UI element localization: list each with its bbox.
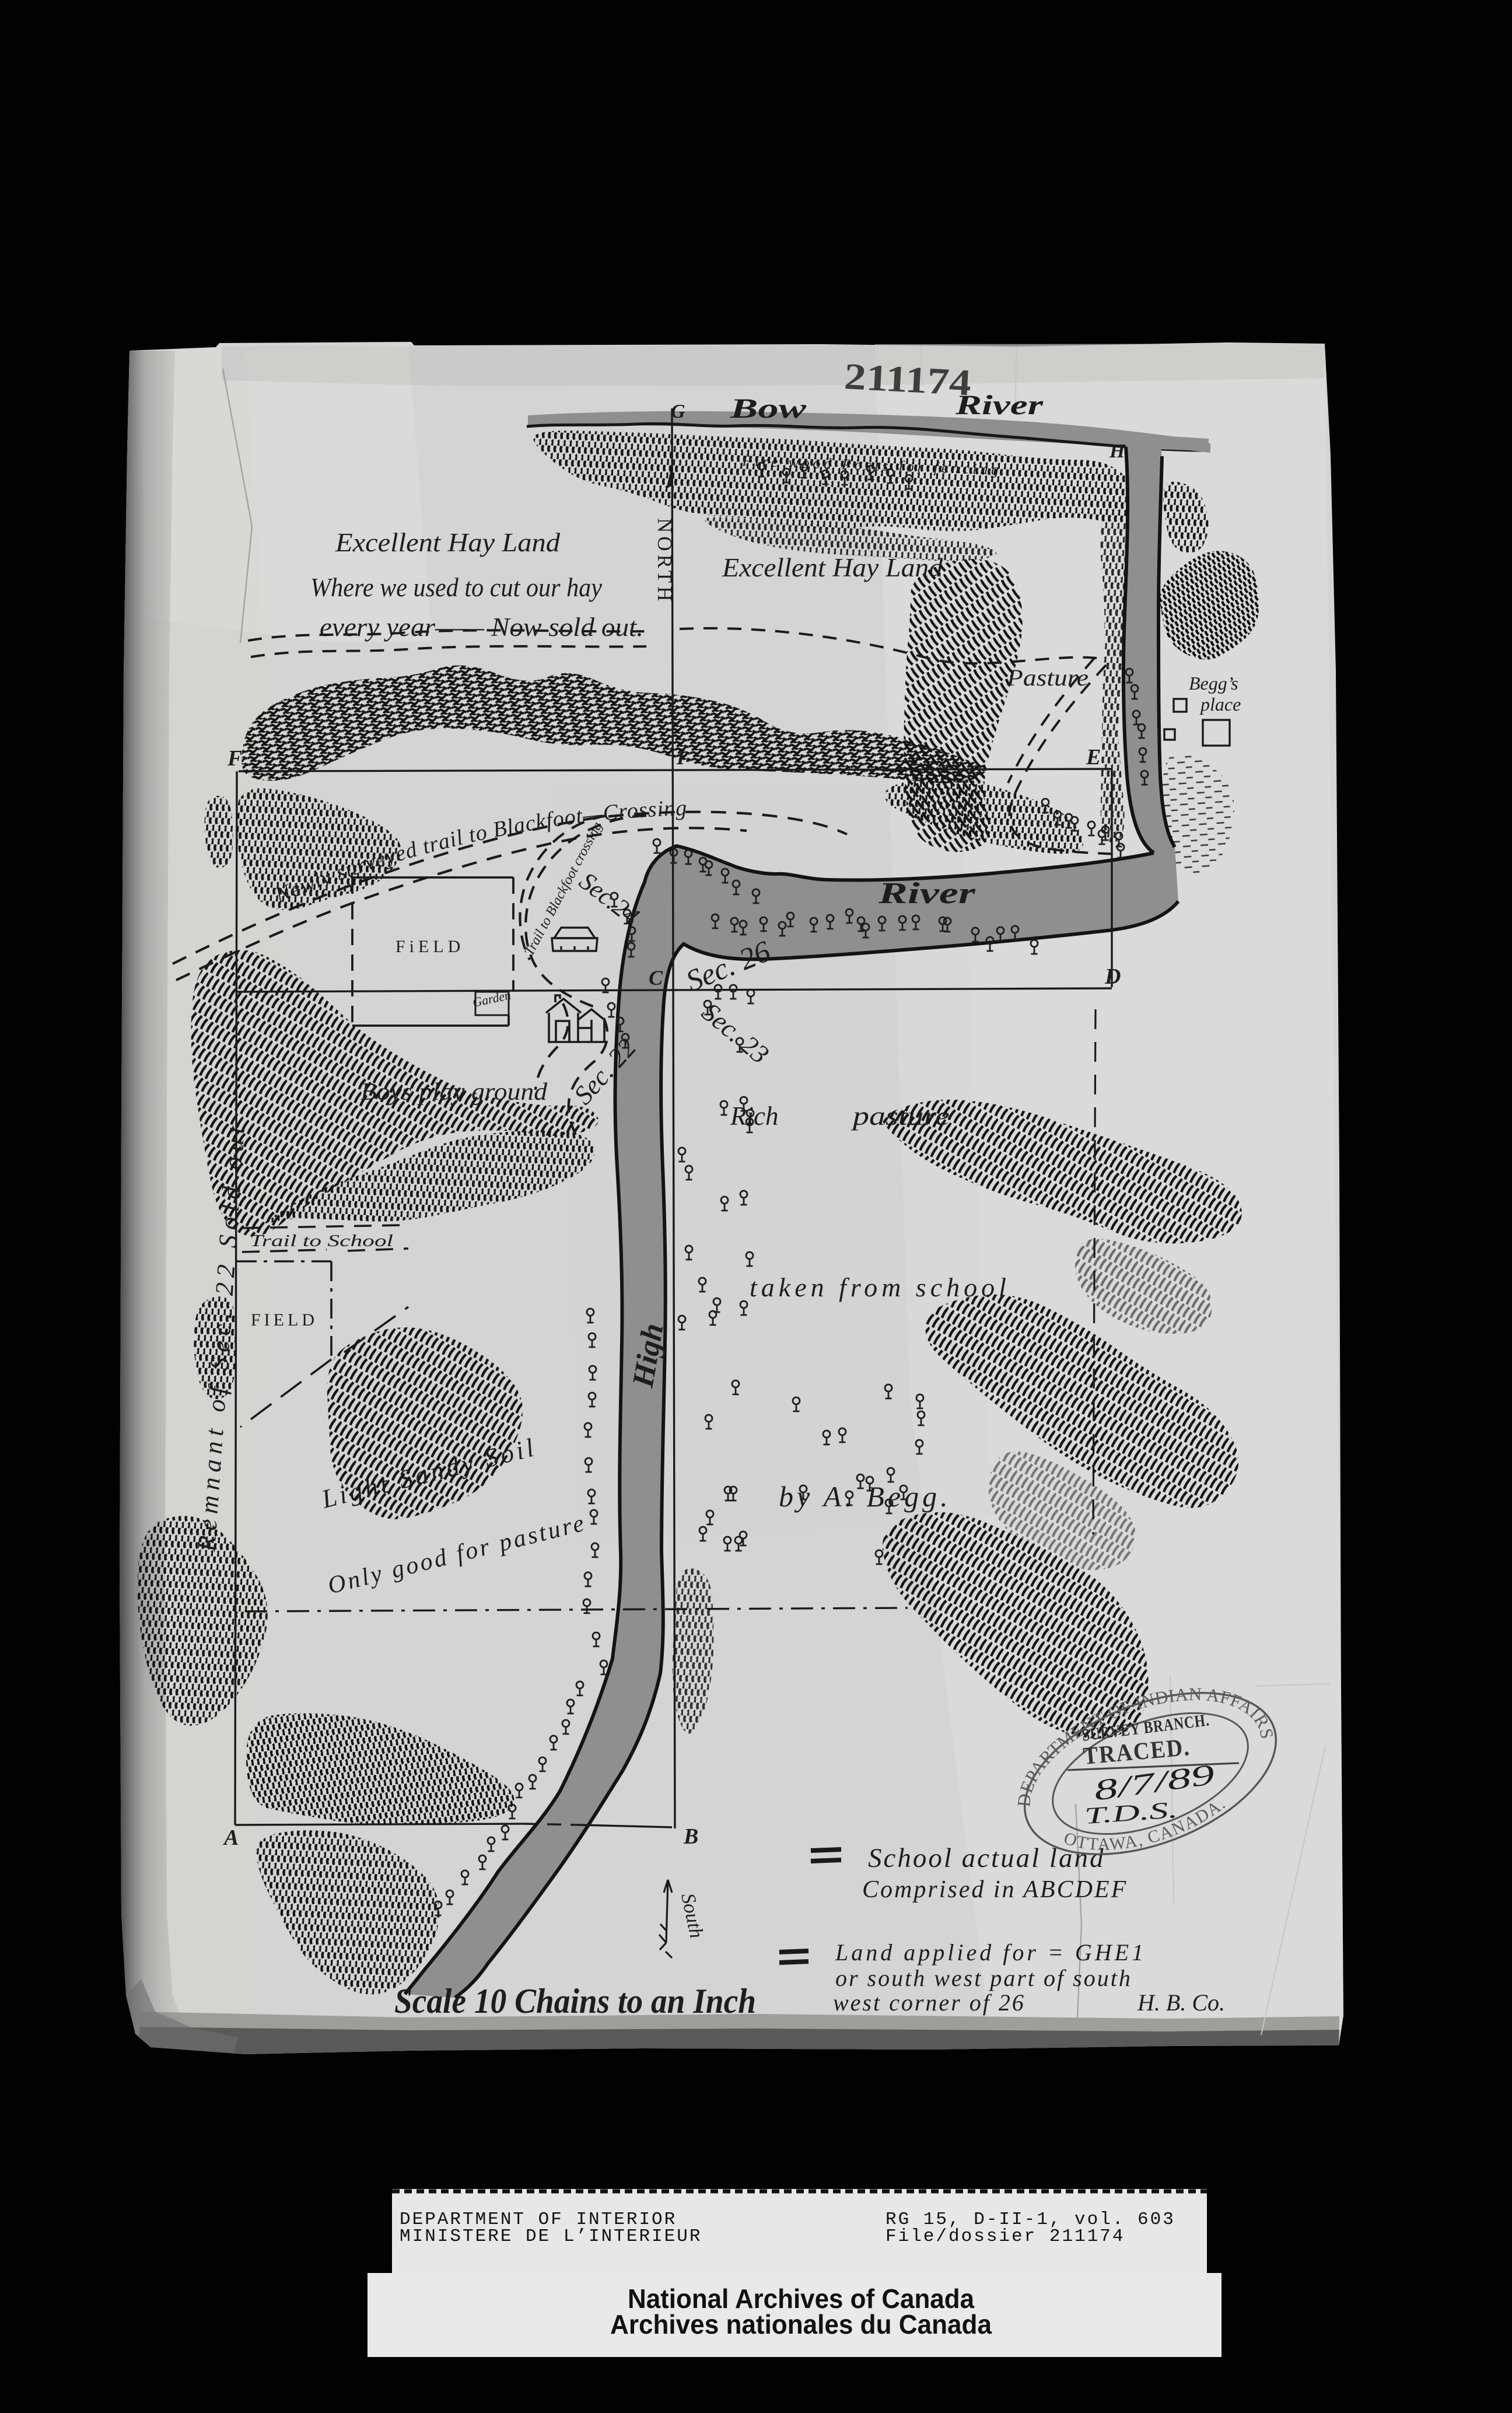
svg-text:FIELD: FIELD (251, 1310, 318, 1330)
svg-text:Rich: Rich (730, 1101, 778, 1131)
svg-text:Comprised in ABCDEF: Comprised in ABCDEF (862, 1876, 1128, 1903)
svg-text:B: B (683, 1824, 698, 1849)
svg-text:taken from school: taken from school (750, 1272, 1010, 1302)
svg-text:every year—— Now sold out.: every year—— Now sold out. (320, 613, 643, 642)
svg-text:A: A (223, 1826, 239, 1850)
svg-text:FiELD: FiELD (395, 937, 464, 956)
svg-text:place: place (1199, 694, 1241, 715)
svg-text:west corner of 26: west corner of 26 (833, 1989, 1025, 2016)
svg-text:NORTH: NORTH (653, 518, 676, 604)
svg-text:Excellent Hay Land: Excellent Hay Land (335, 528, 561, 557)
svg-text:Scale 10 Chains to an Inch: Scale 10 Chains to an Inch (394, 1982, 756, 2020)
svg-text:211174: 211174 (843, 355, 972, 403)
svg-text:Trail to School: Trail to School (250, 1232, 393, 1250)
svg-text:River: River (878, 877, 977, 910)
svg-text:Where we used to cut our hay: Where we used to cut our hay (310, 573, 602, 602)
svg-text:Boys play ground: Boys play ground (360, 1079, 548, 1106)
svg-text:File/dossier 211174: File/dossier 211174 (885, 2226, 1125, 2247)
svg-text:Land applied for = GHE1: Land applied for = GHE1 (835, 1939, 1146, 1966)
svg-text:D: D (1104, 964, 1121, 989)
svg-text:H. B. Co.: H. B. Co. (1137, 1989, 1225, 2016)
svg-text:Archives nationales du Canada: Archives nationales du Canada (610, 2309, 992, 2339)
svg-text:E: E (1086, 745, 1101, 770)
svg-text:MINISTERE DE L’INTERIEUR: MINISTERE DE L’INTERIEUR (400, 2226, 702, 2247)
svg-text:F: F (227, 746, 242, 771)
svg-text:Excellent Hay Land: Excellent Hay Land (722, 553, 943, 582)
svg-text:by A. Begg.: by A. Begg. (779, 1480, 951, 1513)
svg-text:or south west part of south: or south west part of south (835, 1965, 1132, 1991)
svg-text:pasture: pasture (850, 1101, 950, 1131)
svg-text:I: I (676, 746, 686, 769)
svg-text:River: River (955, 390, 1044, 421)
svg-text:C: C (649, 966, 663, 989)
svg-text:G: G (671, 401, 685, 422)
svg-text:Pasture: Pasture (1006, 665, 1088, 691)
svg-text:H: H (1109, 440, 1126, 462)
svg-text:Begg’s: Begg’s (1189, 673, 1238, 694)
svg-text:Bow: Bow (730, 393, 807, 424)
